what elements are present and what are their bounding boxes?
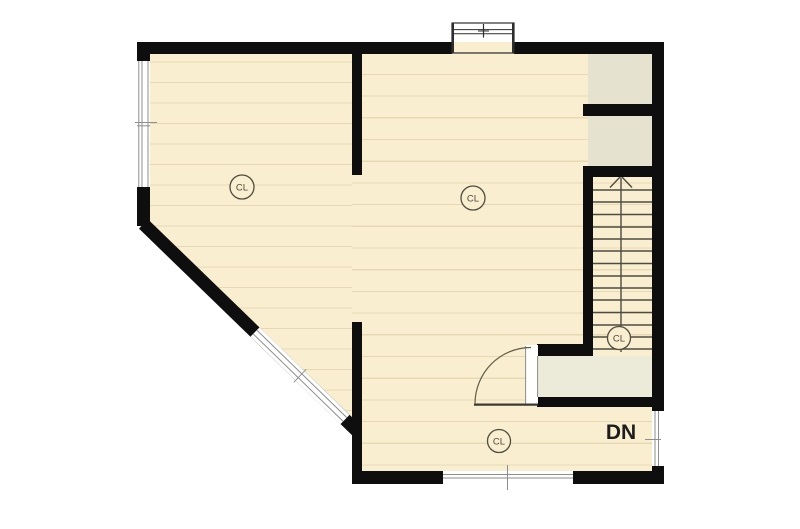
wall-landing-bottom	[537, 397, 652, 407]
closet-label-right-text: CL	[467, 194, 479, 205]
window-diagonal	[253, 330, 347, 421]
floor-plan: CL CL CL CL DN	[0, 0, 800, 529]
staircase	[593, 176, 652, 352]
stair-landing	[538, 356, 652, 397]
stair-treads	[593, 190, 652, 349]
wall-top-right	[514, 42, 664, 54]
stairs-down-label: DN	[606, 421, 636, 444]
window-left	[135, 61, 157, 187]
closet-label-right: CL	[461, 186, 485, 210]
closet-cell-top	[588, 54, 652, 104]
closet-label-stair-text: CL	[613, 334, 625, 345]
closet-label-left-text: CL	[236, 183, 248, 194]
closet-label-hall: CL	[488, 430, 511, 453]
closet-label-hall-text: CL	[493, 437, 505, 448]
wall-landing-top	[537, 344, 593, 356]
walls	[137, 42, 664, 484]
wall-bottom-left	[352, 471, 443, 484]
wall-left-upper	[137, 42, 150, 62]
wall-stair-top	[583, 166, 652, 177]
door-opening	[525, 345, 538, 405]
window-bottom	[443, 465, 573, 490]
floor-plan-overlay: CL CL CL CL DN	[0, 0, 800, 529]
window-right	[645, 411, 664, 466]
wall-top-left	[137, 42, 452, 54]
wall-stair-left	[583, 177, 593, 356]
chimney-bay	[452, 23, 514, 53]
door	[474, 345, 538, 405]
closet-label-stair: CL	[608, 327, 631, 350]
wall-right-upper	[652, 42, 664, 411]
closet-cell-mid	[588, 116, 652, 166]
door-swing-arc	[475, 348, 531, 405]
closet-label-left: CL	[230, 175, 254, 199]
wall-closet-divider	[583, 104, 652, 116]
wall-bottom-right	[573, 471, 664, 484]
wall-partition-upper	[352, 42, 362, 175]
wall-partition-lower	[352, 322, 362, 484]
